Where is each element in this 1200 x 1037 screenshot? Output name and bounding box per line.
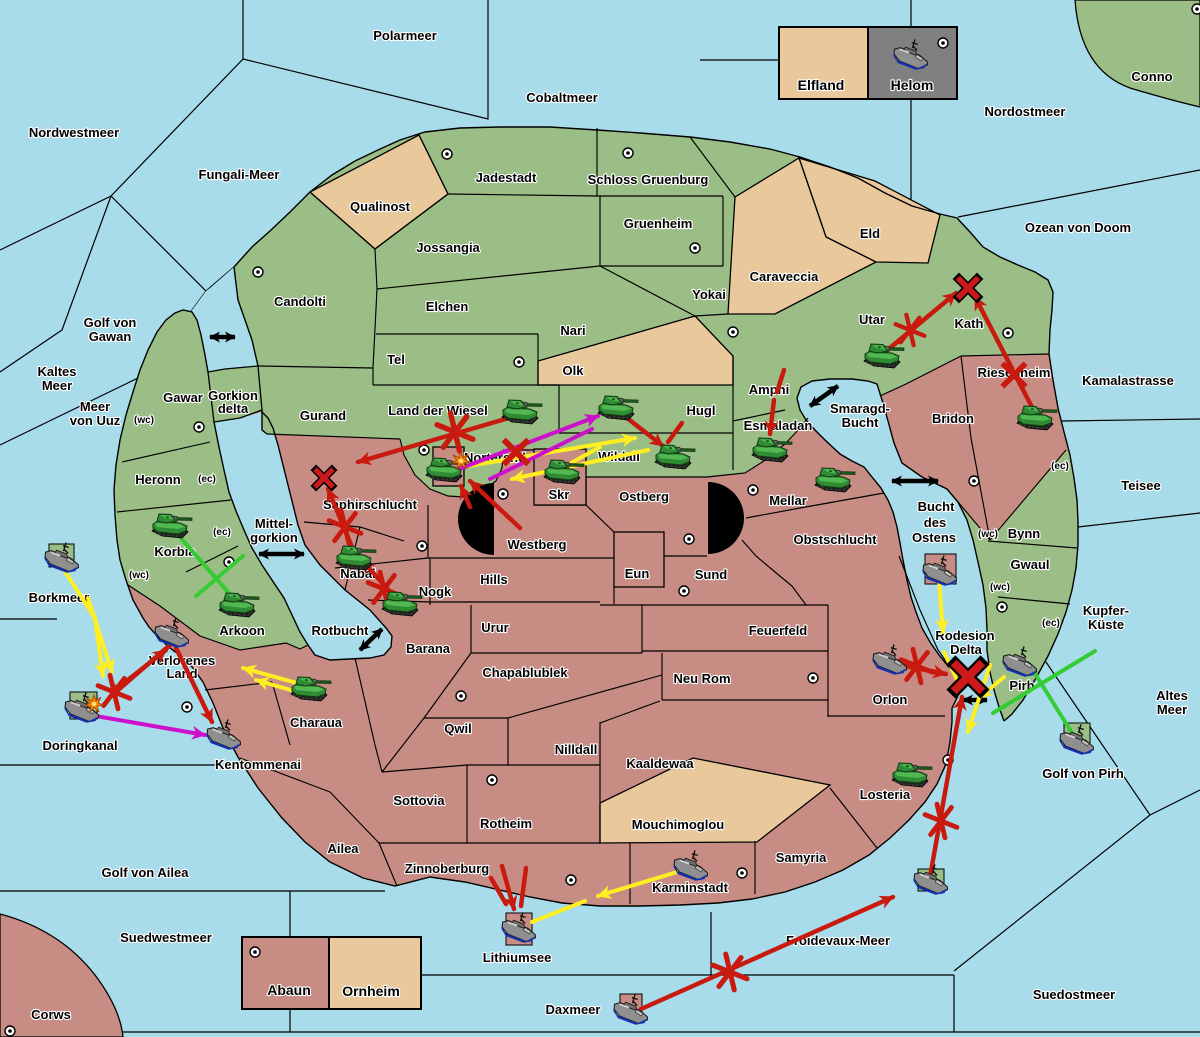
svg-text:Esmaladan: Esmaladan: [744, 418, 813, 433]
svg-text:Orlon: Orlon: [873, 692, 908, 707]
svg-text:Meer: Meer: [80, 399, 110, 414]
svg-text:Helom: Helom: [891, 77, 934, 93]
svg-text:Losteria: Losteria: [860, 787, 911, 802]
svg-text:Gruenheim: Gruenheim: [624, 216, 693, 231]
svg-text:Olk: Olk: [563, 363, 585, 378]
svg-text:(wc): (wc): [978, 529, 998, 540]
svg-text:des: des: [924, 515, 946, 530]
svg-text:Sund: Sund: [695, 567, 728, 582]
svg-text:(ec): (ec): [213, 527, 231, 538]
svg-text:Cobaltmeer: Cobaltmeer: [526, 90, 598, 105]
svg-text:(ec): (ec): [198, 474, 216, 485]
svg-text:Yokai: Yokai: [692, 287, 726, 302]
svg-text:Lithiumsee: Lithiumsee: [483, 950, 552, 965]
svg-text:Land der Wiesel: Land der Wiesel: [388, 403, 488, 418]
svg-text:Polarmeer: Polarmeer: [373, 28, 437, 43]
svg-text:Suedostmeer: Suedostmeer: [1033, 987, 1115, 1002]
svg-text:Westberg: Westberg: [508, 537, 567, 552]
svg-text:Arkoon: Arkoon: [219, 623, 265, 638]
svg-text:Schloss Gruenburg: Schloss Gruenburg: [588, 172, 709, 187]
svg-text:Nordwestmeer: Nordwestmeer: [29, 125, 119, 140]
svg-text:gorkion: gorkion: [250, 530, 298, 545]
svg-text:Caraveccia: Caraveccia: [750, 269, 819, 284]
svg-text:Golf von Ailea: Golf von Ailea: [102, 865, 190, 880]
svg-text:Kath: Kath: [955, 316, 984, 331]
svg-text:Qwil: Qwil: [444, 721, 471, 736]
svg-text:Kaaldewaa: Kaaldewaa: [626, 756, 694, 771]
svg-text:Feuerfeld: Feuerfeld: [749, 623, 808, 638]
svg-text:Delta: Delta: [950, 642, 983, 657]
svg-text:Doringkanal: Doringkanal: [42, 738, 117, 753]
svg-text:(ec): (ec): [1042, 618, 1060, 629]
svg-text:Sottovia: Sottovia: [393, 793, 445, 808]
svg-text:Rotbucht: Rotbucht: [311, 623, 369, 638]
svg-text:Ostberg: Ostberg: [619, 489, 669, 504]
svg-text:Conno: Conno: [1131, 69, 1172, 84]
svg-text:Ornheim: Ornheim: [342, 983, 400, 999]
svg-text:Ostens: Ostens: [912, 530, 956, 545]
svg-text:Abaun: Abaun: [267, 982, 311, 998]
svg-text:delta: delta: [218, 401, 249, 416]
svg-text:(wc): (wc): [134, 415, 154, 426]
svg-text:von Uuz: von Uuz: [70, 413, 121, 428]
svg-text:Chapablublek: Chapablublek: [482, 665, 568, 680]
svg-text:Küste: Küste: [1088, 617, 1124, 632]
svg-text:Bridon: Bridon: [932, 411, 974, 426]
svg-text:Gawan: Gawan: [89, 329, 132, 344]
svg-text:Teisee: Teisee: [1121, 478, 1161, 493]
svg-text:Mouchimoglou: Mouchimoglou: [632, 817, 724, 832]
svg-text:Gwaul: Gwaul: [1010, 557, 1049, 572]
svg-text:Corws: Corws: [31, 1007, 71, 1022]
svg-text:Hills: Hills: [480, 572, 507, 587]
svg-text:Fungali-Meer: Fungali-Meer: [199, 167, 280, 182]
svg-text:Utar: Utar: [859, 312, 885, 327]
svg-text:Altes: Altes: [1156, 688, 1188, 703]
svg-text:Meer: Meer: [1157, 702, 1187, 717]
svg-text:Nordostmeer: Nordostmeer: [985, 104, 1066, 119]
svg-text:Nilldall: Nilldall: [555, 742, 598, 757]
svg-text:Tel: Tel: [387, 352, 405, 367]
svg-text:Bucht: Bucht: [918, 499, 956, 514]
svg-text:Jossangia: Jossangia: [416, 240, 480, 255]
svg-text:Samyria: Samyria: [776, 850, 827, 865]
svg-text:Kaltes: Kaltes: [37, 364, 76, 379]
svg-text:Meer: Meer: [42, 378, 72, 393]
svg-text:Nogk: Nogk: [419, 584, 452, 599]
svg-text:Bucht: Bucht: [842, 415, 880, 430]
svg-text:Skr: Skr: [549, 487, 570, 502]
svg-text:Candolti: Candolti: [274, 294, 326, 309]
svg-text:Heronn: Heronn: [135, 472, 181, 487]
svg-text:Neu Rom: Neu Rom: [673, 671, 730, 686]
svg-text:(wc): (wc): [990, 582, 1010, 593]
svg-text:Ozean von Doom: Ozean von Doom: [1025, 220, 1131, 235]
svg-text:Mittel-: Mittel-: [255, 516, 293, 531]
svg-text:Charaua: Charaua: [290, 715, 343, 730]
svg-text:Ailea: Ailea: [327, 841, 359, 856]
svg-text:Kupfer-: Kupfer-: [1083, 603, 1129, 618]
svg-text:Nari: Nari: [560, 323, 585, 338]
svg-text:Hugl: Hugl: [687, 403, 716, 418]
svg-text:Kamalastrasse: Kamalastrasse: [1082, 373, 1174, 388]
svg-text:Smaragd-: Smaragd-: [830, 401, 890, 416]
svg-text:Jadestadt: Jadestadt: [476, 170, 537, 185]
svg-text:Karminstadt: Karminstadt: [652, 880, 729, 895]
svg-text:Qualinost: Qualinost: [350, 199, 411, 214]
svg-text:Suedwestmeer: Suedwestmeer: [120, 930, 212, 945]
svg-text:Urur: Urur: [481, 620, 508, 635]
svg-text:(wc): (wc): [129, 570, 149, 581]
svg-text:Gawar: Gawar: [163, 390, 203, 405]
svg-text:Obstschlucht: Obstschlucht: [793, 532, 877, 547]
svg-text:Elchen: Elchen: [426, 299, 469, 314]
svg-text:Daxmeer: Daxmeer: [546, 1002, 601, 1017]
svg-text:Elfland: Elfland: [798, 77, 845, 93]
svg-text:Zinnoberburg: Zinnoberburg: [405, 861, 490, 876]
svg-text:Barana: Barana: [406, 641, 451, 656]
svg-text:Bynn: Bynn: [1008, 526, 1041, 541]
svg-text:(ec): (ec): [1051, 461, 1069, 472]
svg-text:Amphi: Amphi: [749, 382, 789, 397]
svg-text:Eld: Eld: [860, 226, 880, 241]
svg-text:Golf von: Golf von: [84, 315, 137, 330]
svg-text:Kentommenai: Kentommenai: [215, 757, 301, 772]
svg-text:Mellar: Mellar: [769, 493, 807, 508]
svg-text:Eun: Eun: [625, 566, 650, 581]
svg-text:Golf von Pirh: Golf von Pirh: [1042, 766, 1124, 781]
svg-text:Gurand: Gurand: [300, 408, 346, 423]
svg-text:Rotheim: Rotheim: [480, 816, 532, 831]
